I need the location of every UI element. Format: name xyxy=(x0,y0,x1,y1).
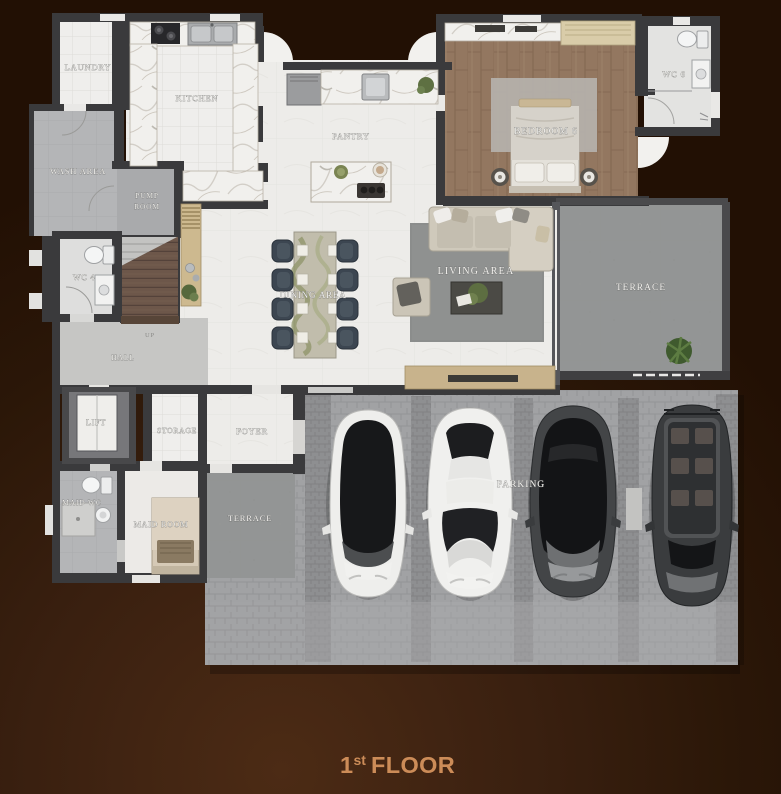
svg-text:TERRACE: TERRACE xyxy=(228,513,272,523)
svg-text:LIFT: LIFT xyxy=(86,418,106,427)
svg-text:UP: UP xyxy=(145,332,155,339)
svg-text:BEDROOM 6: BEDROOM 6 xyxy=(514,127,578,137)
svg-text:ROOM: ROOM xyxy=(134,202,160,211)
svg-text:PANTRY: PANTRY xyxy=(332,131,370,141)
svg-text:KITCHEN: KITCHEN xyxy=(176,93,219,103)
svg-text:WC 4: WC 4 xyxy=(73,273,95,282)
svg-text:WASH AREA: WASH AREA xyxy=(50,166,106,176)
svg-text:FOYER: FOYER xyxy=(236,426,268,436)
svg-text:TERRACE: TERRACE xyxy=(616,283,666,293)
svg-text:WC 6: WC 6 xyxy=(662,69,685,79)
svg-text:DINING AREA: DINING AREA xyxy=(279,290,346,300)
svg-text:LIVING AREA: LIVING AREA xyxy=(438,266,515,277)
svg-text:LAUNDRY: LAUNDRY xyxy=(65,62,112,72)
svg-text:PUMP: PUMP xyxy=(135,191,159,200)
svg-text:STORAGE: STORAGE xyxy=(157,426,197,435)
svg-text:HALL: HALL xyxy=(111,353,134,362)
svg-text:MAID WC: MAID WC xyxy=(62,498,101,507)
svg-text:MAID ROOM: MAID ROOM xyxy=(134,520,189,529)
svg-text:PARKING: PARKING xyxy=(497,480,545,490)
